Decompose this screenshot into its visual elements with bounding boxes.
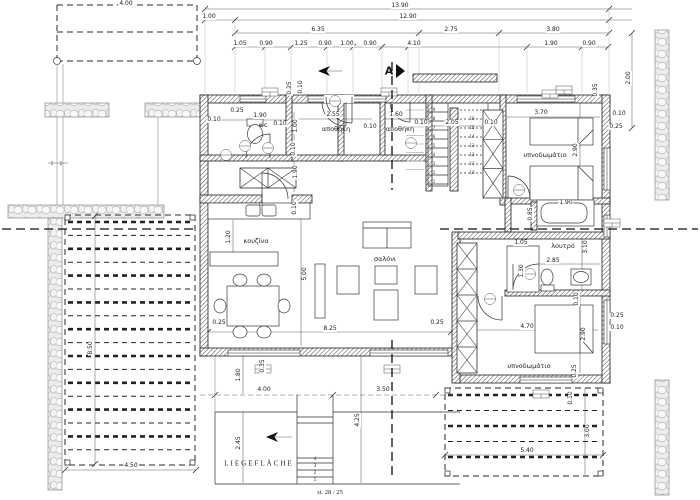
bed-single-2	[530, 166, 593, 200]
armchair	[337, 266, 359, 294]
dining-table	[214, 274, 290, 338]
bed-single-1	[530, 118, 593, 145]
wall-exterior-left	[200, 95, 208, 356]
dimension-lines	[62, 6, 635, 483]
kitchen-counter	[208, 203, 310, 219]
right-deck	[445, 388, 603, 476]
kitchen-island	[210, 252, 278, 266]
wall-storage-divider	[380, 95, 385, 161]
terrace	[215, 356, 460, 484]
wall-stair-middle	[450, 108, 458, 191]
armchair	[415, 266, 437, 294]
floor-plan-canvas: 13.901.0012.906.352.753.801.050.901.250.…	[0, 0, 700, 500]
shelf	[315, 264, 325, 318]
staircase	[406, 103, 488, 186]
bath-sink	[571, 269, 591, 285]
wall-bath-top	[458, 232, 610, 239]
wall-tub-side	[531, 202, 537, 230]
entrance-canopy	[413, 74, 497, 82]
pergola-post	[194, 58, 201, 65]
wall-storage-bottom	[292, 155, 432, 161]
pergola-post	[54, 58, 61, 65]
wc-toilet	[247, 119, 263, 144]
sofa	[363, 222, 411, 248]
bath-toilet	[541, 269, 554, 291]
coffee-table	[374, 290, 398, 320]
left-deck	[65, 215, 195, 465]
wall-wc-right	[286, 95, 292, 161]
sink-faucet	[260, 203, 263, 206]
shower	[507, 246, 539, 292]
side-table	[375, 266, 397, 284]
bathtub	[537, 200, 594, 226]
section-arrow	[396, 64, 405, 78]
plan-linework	[0, 0, 700, 500]
wall-stair-left	[426, 95, 432, 191]
bed-double	[535, 305, 593, 353]
wall-kitchen-top-a	[200, 195, 262, 203]
wall-bath-niche	[505, 198, 511, 232]
wall-kitchen-top-b	[292, 195, 312, 203]
